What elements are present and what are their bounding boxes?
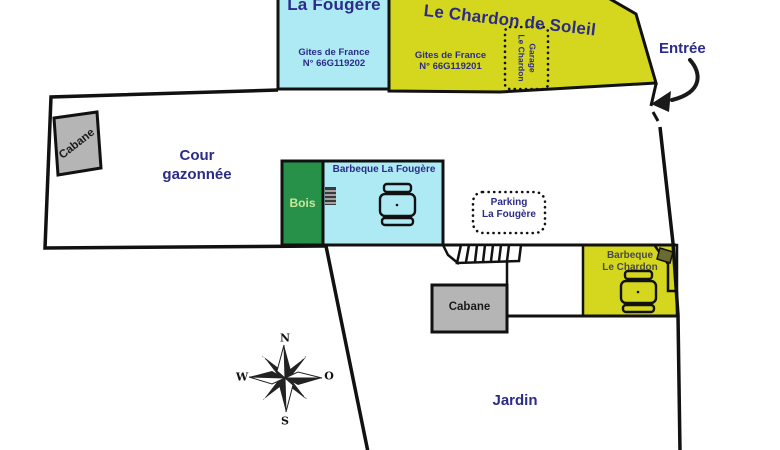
barbeque-chardon-label-line1: Barbeque bbox=[585, 250, 675, 261]
barbeque-fougere-label: Barbeque La Fougère bbox=[325, 164, 443, 175]
stairs-icon bbox=[457, 245, 521, 263]
le-chardon-number: N° 66G119201 bbox=[398, 61, 503, 72]
garage-label-line1: Garage bbox=[527, 34, 538, 81]
la-fougere-title: La Fougère bbox=[278, 0, 390, 15]
cour-gazonnee-label-line2: gazonnée bbox=[128, 166, 266, 183]
jardin-label: Jardin bbox=[465, 392, 565, 409]
garage-label: Garage Le Chardon bbox=[516, 34, 537, 81]
entree-label: Entrée bbox=[659, 40, 706, 57]
compass-south-label: S bbox=[281, 415, 289, 428]
entrance-gap-dash bbox=[653, 112, 658, 121]
gate-icon bbox=[325, 187, 336, 205]
site-plan: La Fougère Gites de France N° 66G119202 … bbox=[0, 0, 780, 450]
compass-rose-icon bbox=[249, 345, 322, 412]
barbeque-chardon-label-line2: Le Chardon bbox=[585, 262, 675, 273]
la-fougere-number: N° 66G119202 bbox=[278, 58, 390, 69]
bois-label: Bois bbox=[282, 196, 323, 210]
la-fougere-org: Gites de France bbox=[278, 47, 390, 58]
jardin-diagonal-boundary bbox=[326, 246, 368, 450]
garage-label-line2: Le Chardon bbox=[516, 34, 527, 81]
cour-gazonnee-label-line1: Cour bbox=[128, 147, 266, 164]
parking-label-line2: La Fougère bbox=[473, 209, 545, 220]
le-chardon-org: Gites de France bbox=[398, 50, 503, 61]
compass-west-label: W bbox=[236, 371, 248, 384]
cabane-bottom-label: Cabane bbox=[432, 301, 507, 313]
parking-label-line1: Parking bbox=[473, 197, 545, 208]
compass-north-label: N bbox=[280, 332, 290, 345]
site-plan-drawing bbox=[0, 0, 780, 450]
entrance-arrow-icon bbox=[651, 60, 698, 112]
compass-east-label: O bbox=[324, 370, 334, 383]
